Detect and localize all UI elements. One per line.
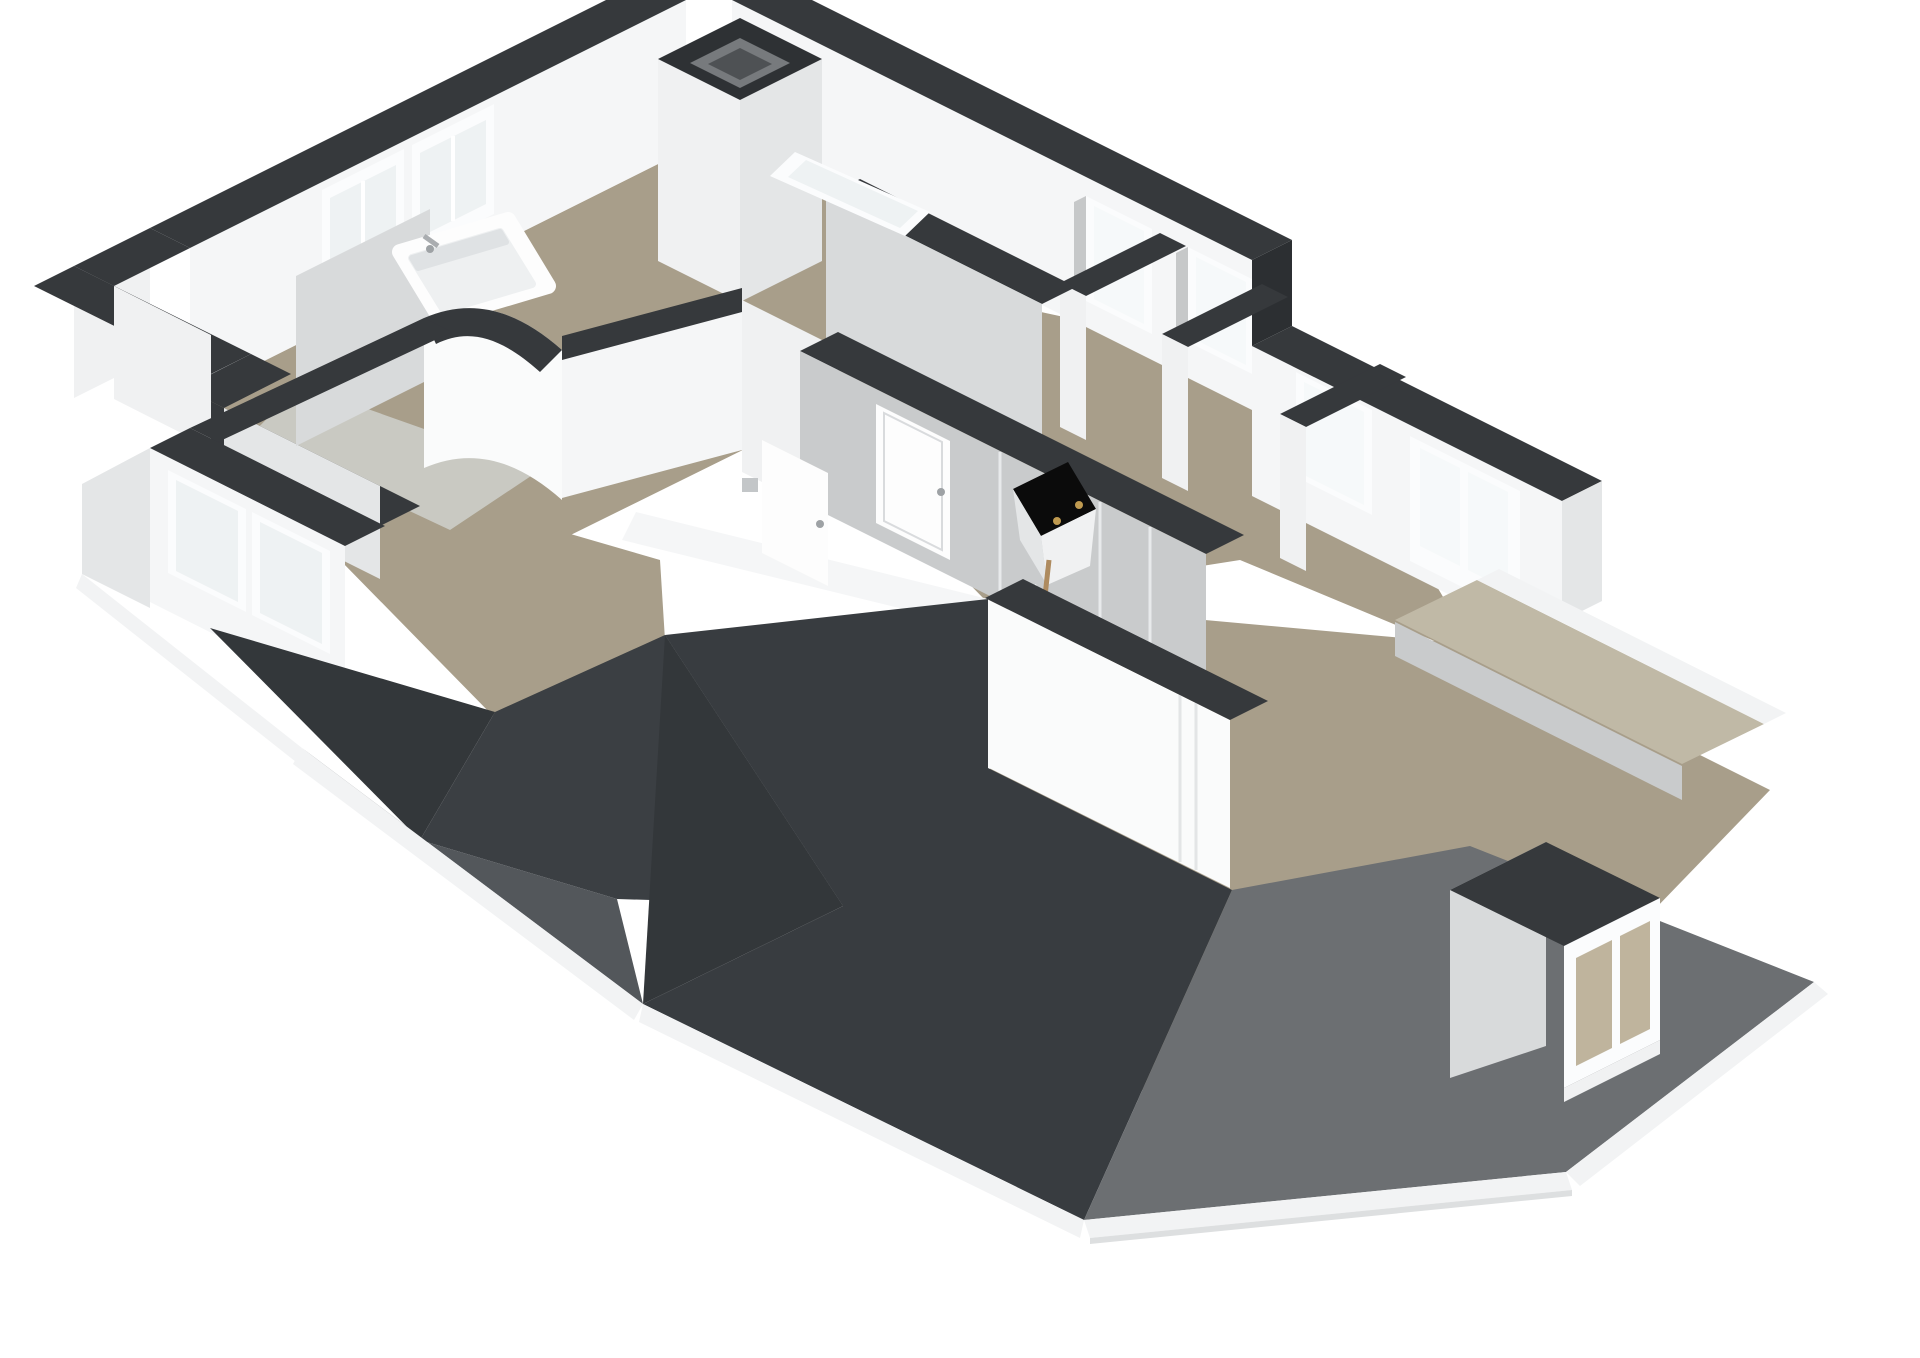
floorplan-svg: [0, 0, 1920, 1358]
e-window-4-glass-left: [1420, 448, 1460, 566]
room-divider-face-1: [1060, 283, 1086, 440]
brass-hinge-pin: [1053, 517, 1061, 525]
room-divider-face-2: [1162, 334, 1188, 491]
wall-vent-icon: [742, 478, 758, 492]
e-gable-face: [1562, 481, 1602, 621]
door-2-handle-icon: [816, 520, 824, 528]
dormer-window-glass-right: [1620, 921, 1650, 1044]
bath-faucet-base: [426, 245, 434, 253]
chimney-left-face: [658, 59, 740, 302]
brass-hinge-pin: [1075, 501, 1083, 509]
floorplan-3d-view: [0, 0, 1920, 1358]
door-1-handle-icon: [937, 488, 945, 496]
dormer-window-glass-left: [1576, 940, 1612, 1066]
room-divider-face-3: [1280, 414, 1306, 571]
